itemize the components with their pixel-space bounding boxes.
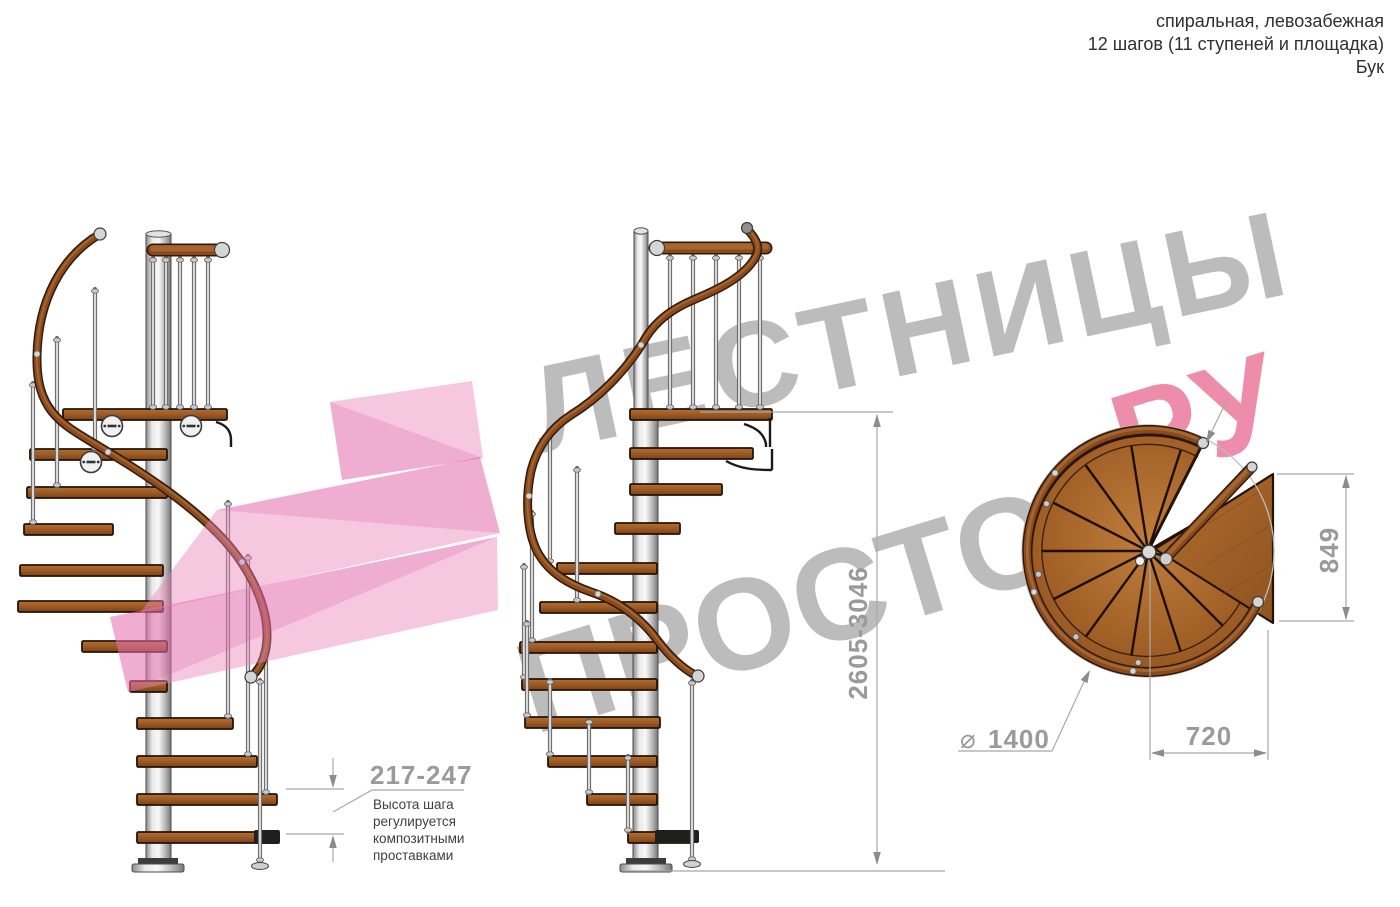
baluster-knob [256, 858, 263, 862]
arrowhead [1151, 749, 1164, 757]
step [587, 794, 657, 805]
steps-count-label: 12 шагов (11 ступеней и площадка) [1088, 33, 1384, 56]
baluster-knob [162, 405, 169, 409]
baluster-knob [735, 256, 742, 260]
support-foot [252, 863, 269, 870]
baluster-knob [689, 256, 696, 260]
note-line-3: композитными [373, 831, 464, 846]
plan-center-ball [1136, 557, 1145, 566]
support-foot [684, 861, 701, 868]
connector-bolt [97, 461, 100, 464]
baluster-knob [224, 714, 231, 718]
step-height-dimension: 217-247 [370, 760, 472, 790]
baluster-knob [523, 713, 530, 717]
title-block: спиральная, левозабежная 12 шагов (11 ст… [1088, 10, 1384, 79]
baluster-knob [176, 405, 183, 409]
step [630, 409, 772, 420]
step [557, 563, 657, 574]
note-line-4: проставками [373, 848, 453, 863]
pole-base-flange [132, 864, 184, 872]
baluster-knob [162, 258, 169, 262]
step [137, 756, 257, 767]
connector-bolt [82, 461, 85, 464]
rail-joint [526, 493, 532, 499]
step [137, 718, 233, 729]
baluster-knob [523, 622, 530, 626]
rail-end-cap [1247, 462, 1257, 472]
rail-end-cap [245, 671, 257, 683]
rail-joint [34, 351, 40, 357]
rail-end-cap [742, 223, 753, 234]
center-pole [634, 231, 648, 415]
baluster-knob [528, 638, 535, 642]
landing-width-dimension: 720 [1186, 721, 1232, 751]
plan-baluster-dot [1043, 501, 1049, 507]
arrowhead [1342, 475, 1350, 488]
landing-depth-dimension: 849 [1314, 527, 1344, 573]
baluster-knob [573, 468, 580, 472]
baluster-knob [585, 790, 592, 794]
step [522, 679, 657, 690]
step [63, 409, 227, 420]
rail-joint [105, 449, 111, 455]
baluster-knob [712, 405, 719, 409]
baluster-knob [546, 752, 553, 756]
arrowhead [873, 852, 881, 865]
baluster-knob [624, 828, 631, 832]
staircase-technical-drawing: ЛЕСТНИЦЫ ПРОСТО .РУ 2605-3046 [0, 0, 1400, 907]
rail-joint [1130, 668, 1136, 674]
rail-end-cap [215, 243, 230, 258]
pole-cap [634, 228, 648, 234]
plan-center-pole [1142, 545, 1156, 559]
step [520, 642, 657, 653]
rail-joint [595, 591, 601, 597]
plan-baluster-dot [1135, 660, 1141, 666]
wall-bracket [726, 461, 772, 470]
baluster-knob [689, 405, 696, 409]
baluster-knob [53, 483, 60, 487]
connector-bolt [118, 425, 121, 428]
baluster-knob [585, 720, 592, 724]
arrowhead [1254, 749, 1267, 757]
plan-baluster-dot [1035, 571, 1041, 577]
total-height-dimension: 2605-3046 [843, 566, 873, 699]
step [27, 487, 167, 498]
baluster-knob [190, 405, 197, 409]
baluster-knob [149, 405, 156, 409]
step [630, 448, 753, 459]
baluster-knob [190, 258, 197, 262]
baluster-knob [624, 756, 631, 760]
baluster-knob [735, 405, 742, 409]
rail-end-cap [94, 228, 106, 240]
diameter-symbol: ⌀ [960, 724, 976, 754]
arrowhead [873, 414, 881, 427]
wall-bracket [216, 422, 231, 447]
step [615, 523, 680, 534]
baluster-knob [204, 258, 211, 262]
baluster-knob [91, 289, 98, 293]
rail-end-cap [650, 241, 665, 256]
connector-bolt [197, 425, 200, 428]
connector-bolt [182, 425, 185, 428]
leader-line [1052, 673, 1088, 751]
rail-end-cap [692, 670, 704, 682]
baluster-knob [520, 565, 527, 569]
material-label: Бук [1088, 56, 1384, 79]
baluster-knob [244, 752, 251, 756]
baluster-knob [149, 258, 156, 262]
diameter-dimension: 1400 [988, 724, 1050, 754]
step [137, 794, 277, 805]
baluster-knob [224, 502, 231, 506]
baluster-knob [666, 405, 673, 409]
baluster-knob [176, 258, 183, 262]
baluster-knob [666, 256, 673, 260]
step [20, 565, 163, 576]
arrowhead [329, 835, 337, 848]
step [548, 756, 657, 767]
step [630, 484, 722, 495]
rail-joint [638, 342, 644, 348]
arrowhead [1342, 607, 1350, 620]
step [18, 601, 163, 612]
connector-bolt [103, 425, 106, 428]
plan-baluster-dot [1073, 634, 1079, 640]
baluster-knob [573, 598, 580, 602]
handrail-hub-fitting [1160, 553, 1172, 565]
arrowhead [1081, 670, 1090, 683]
arrowhead [329, 775, 337, 788]
baluster-knob [204, 405, 211, 409]
baluster-knob [712, 256, 719, 260]
baluster-knob [29, 520, 36, 524]
baluster-knob [256, 680, 263, 684]
step [24, 524, 113, 535]
pole-cap [146, 231, 171, 237]
product-type-label: спиральная, левозабежная [1088, 10, 1384, 33]
rail-joint [1052, 470, 1058, 476]
baluster-knob [53, 338, 60, 342]
baluster-knob [262, 790, 269, 794]
rail-joint [1031, 589, 1037, 595]
baluster-knob [546, 680, 553, 684]
note-line-2: регулируется [373, 814, 456, 829]
drawing-sheet: ЛЕСТНИЦЫ ПРОСТО .РУ 2605-3046 [0, 0, 1400, 907]
note-line-1: Высота шага [373, 797, 454, 812]
rail-end-cap [1253, 597, 1264, 608]
step [540, 602, 657, 613]
baluster-knob [756, 405, 763, 409]
